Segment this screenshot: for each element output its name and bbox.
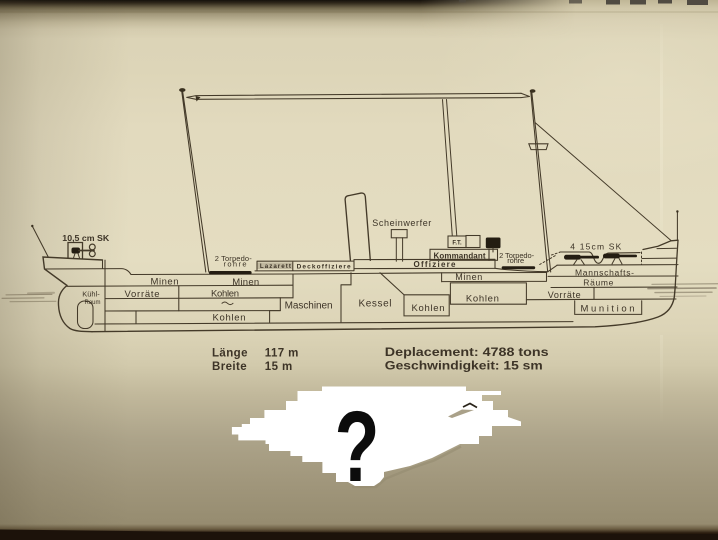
svg-text:?: ? <box>335 391 380 503</box>
